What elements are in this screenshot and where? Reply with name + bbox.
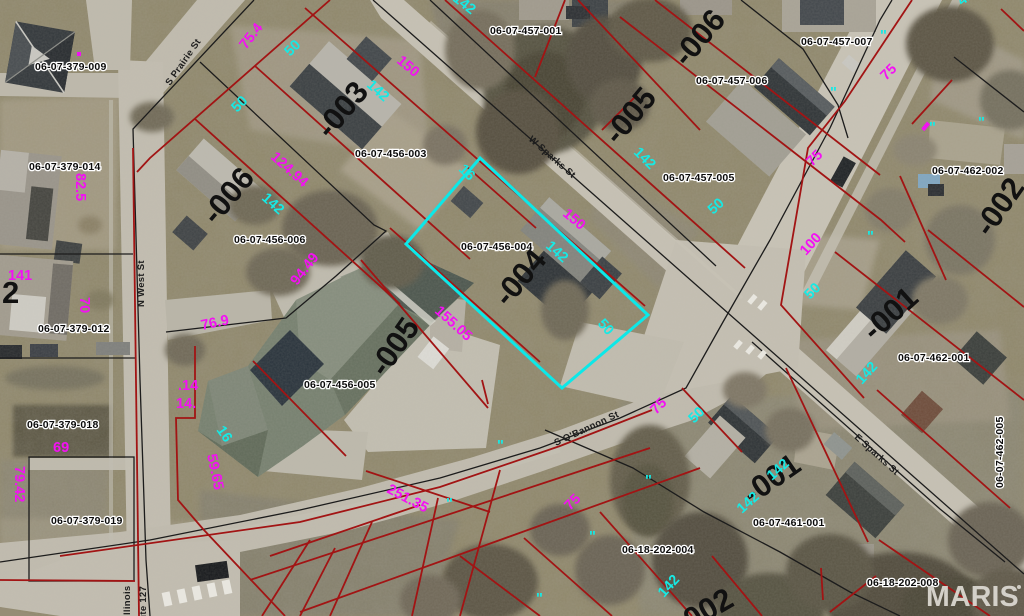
svg-text:06-07-457-007: 06-07-457-007 (801, 36, 873, 48)
svg-text:": " (446, 496, 453, 512)
svg-text:MARIS: MARIS (926, 581, 1019, 613)
svg-text:": " (536, 591, 543, 607)
svg-text:06-07-462-005: 06-07-462-005 (994, 417, 1006, 489)
svg-text:": " (867, 229, 874, 245)
svg-text:82.5: 82.5 (72, 173, 88, 201)
svg-text:06-07-462-001: 06-07-462-001 (898, 352, 970, 364)
svg-text:": " (929, 120, 936, 136)
svg-text:N West St: N West St (136, 260, 147, 307)
svg-text:06-07-379-009: 06-07-379-009 (35, 61, 107, 73)
svg-text:Route 127: Route 127 (138, 586, 149, 616)
svg-text:06-07-456-006: 06-07-456-006 (234, 234, 306, 246)
svg-text:": " (589, 529, 596, 545)
svg-text:06-07-379-014: 06-07-379-014 (29, 161, 101, 173)
svg-text:06-07-457-006: 06-07-457-006 (696, 75, 768, 87)
svg-text:06-07-379-018: 06-07-379-018 (27, 419, 99, 431)
svg-text:06-07-379-019: 06-07-379-019 (51, 515, 123, 527)
svg-text:79.42: 79.42 (11, 466, 27, 502)
svg-text:69: 69 (53, 440, 69, 456)
svg-text:06-07-379-012: 06-07-379-012 (38, 323, 110, 335)
svg-text:": " (978, 115, 985, 131)
svg-text:141: 141 (8, 268, 32, 284)
svg-text:70: 70 (76, 297, 92, 313)
svg-text:": " (645, 473, 652, 489)
svg-text:06-07-462-002: 06-07-462-002 (932, 165, 1004, 177)
svg-text:": " (830, 85, 837, 101)
svg-text:.14: .14 (178, 378, 198, 394)
svg-text:06-07-456-003: 06-07-456-003 (355, 148, 427, 160)
svg-text:06-07-461-001: 06-07-461-001 (753, 517, 825, 529)
svg-text:06-18-202-004: 06-18-202-004 (622, 544, 694, 556)
svg-text:Illinois: Illinois (122, 586, 133, 616)
svg-text:14.: 14. (176, 396, 196, 412)
svg-text:": " (497, 438, 504, 454)
svg-text:06-07-456-005: 06-07-456-005 (304, 379, 376, 391)
svg-text:06-07-457-001: 06-07-457-001 (490, 25, 562, 37)
svg-text:": " (880, 28, 887, 44)
svg-text:06-07-457-005: 06-07-457-005 (663, 172, 735, 184)
